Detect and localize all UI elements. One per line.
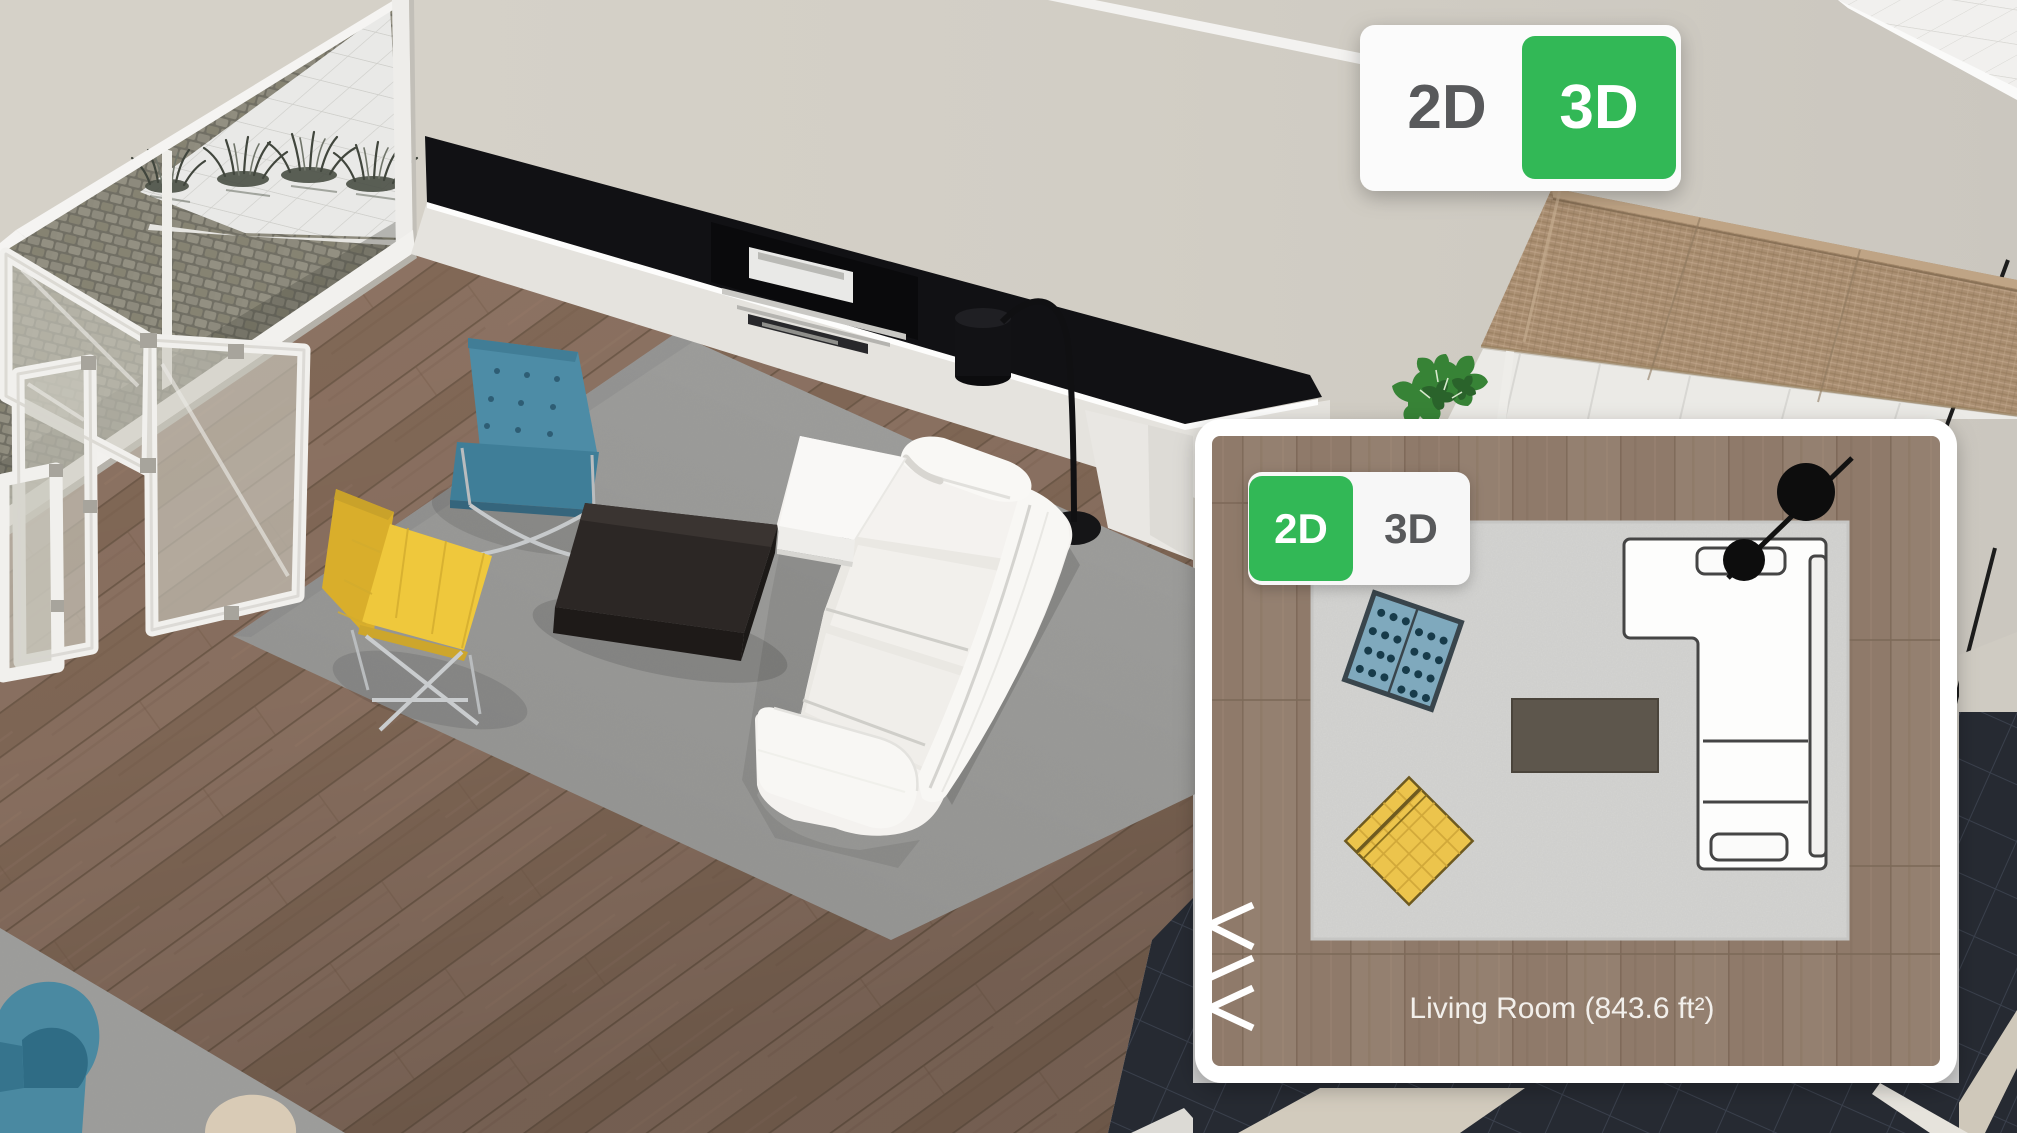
svg-text:2D: 2D — [1274, 505, 1328, 552]
svg-text:3D: 3D — [1384, 505, 1438, 552]
svg-text:2D: 2D — [1407, 73, 1486, 142]
svg-text:Living Room (843.6 ft²): Living Room (843.6 ft²) — [1409, 992, 1714, 1025]
svg-text:3D: 3D — [1559, 73, 1638, 142]
